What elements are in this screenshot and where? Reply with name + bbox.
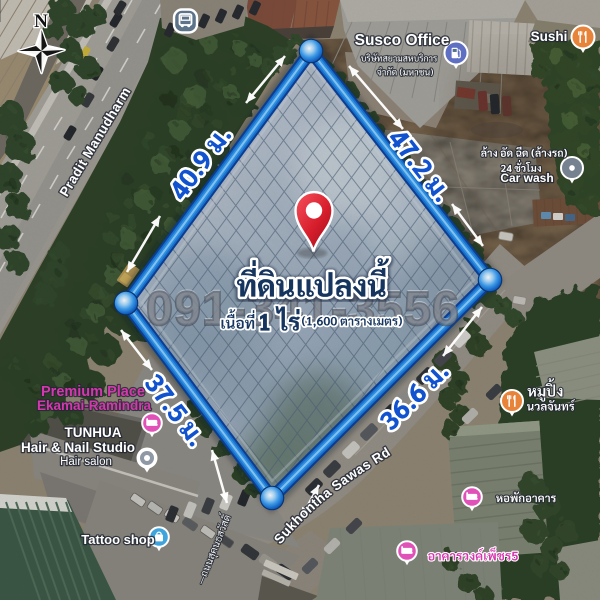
svg-text:Tattoo shop: Tattoo shop	[81, 532, 154, 547]
svg-text:Car wash: Car wash	[500, 171, 553, 185]
svg-text:Susco Office: Susco Office	[355, 32, 450, 49]
svg-text:Sushi: Sushi	[531, 29, 568, 44]
svg-text:Hair & Nail Studio: Hair & Nail Studio	[21, 440, 135, 455]
svg-text:Ekamai-Ramindra: Ekamai-Ramindra	[37, 398, 152, 413]
svg-text:Hair salon: Hair salon	[60, 456, 112, 468]
svg-text:TUNHUA: TUNHUA	[65, 425, 122, 440]
